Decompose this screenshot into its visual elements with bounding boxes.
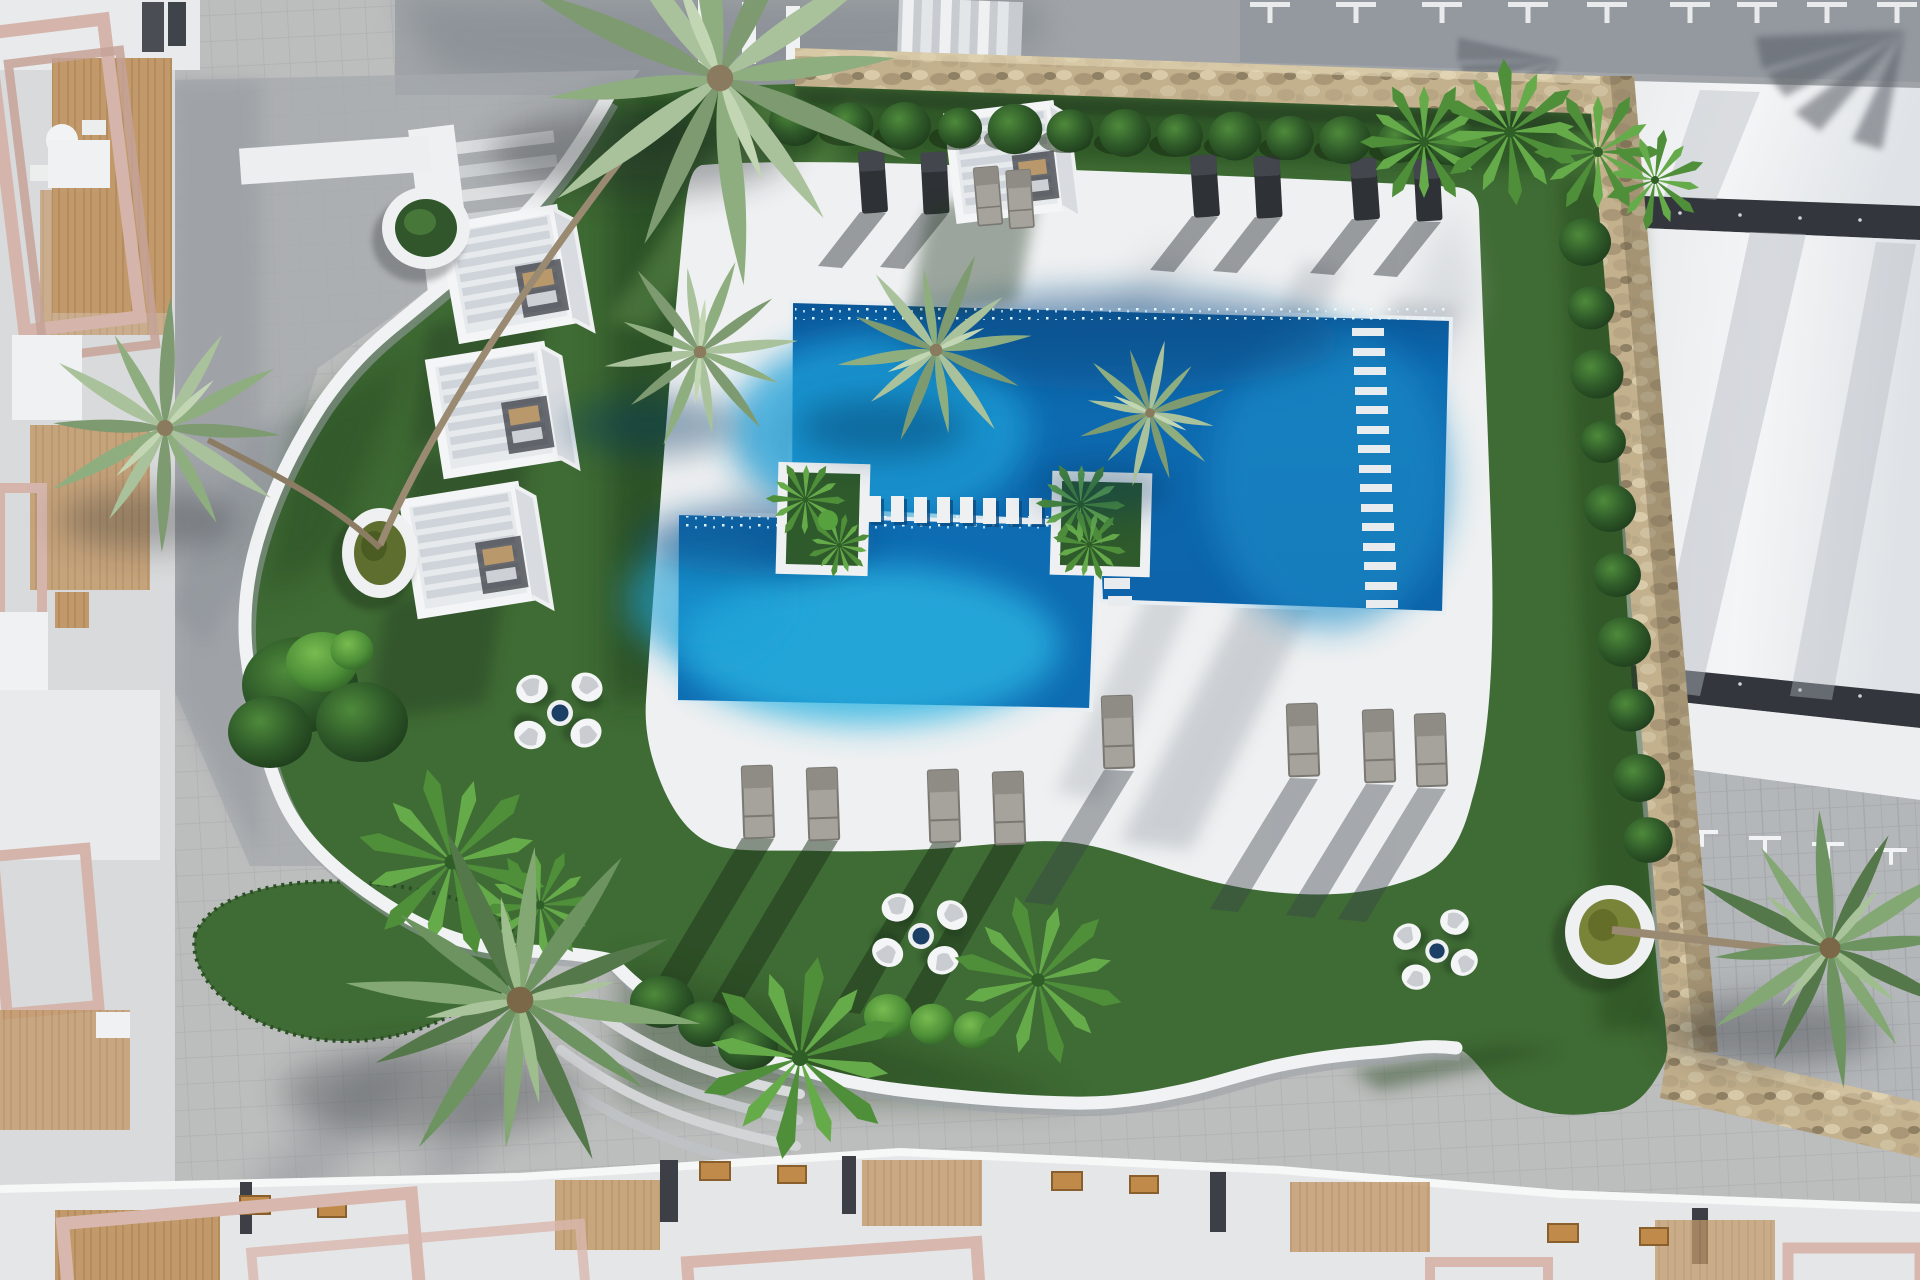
balcony-divider <box>0 612 48 692</box>
resort-aerial-render: Aerial top-down 3D architectural renderi… <box>0 0 1920 1280</box>
water-sparkle <box>795 305 1445 320</box>
skylight-box <box>142 2 164 52</box>
render-canvas: Aerial top-down 3D architectural renderi… <box>0 0 1920 1280</box>
skylight-box <box>168 2 186 46</box>
stairs-top-center <box>897 0 1023 60</box>
buildings-left <box>0 0 200 1280</box>
balcony-divider <box>48 140 110 188</box>
balcony-divider <box>12 335 82 420</box>
pool-planter-west <box>764 462 885 589</box>
